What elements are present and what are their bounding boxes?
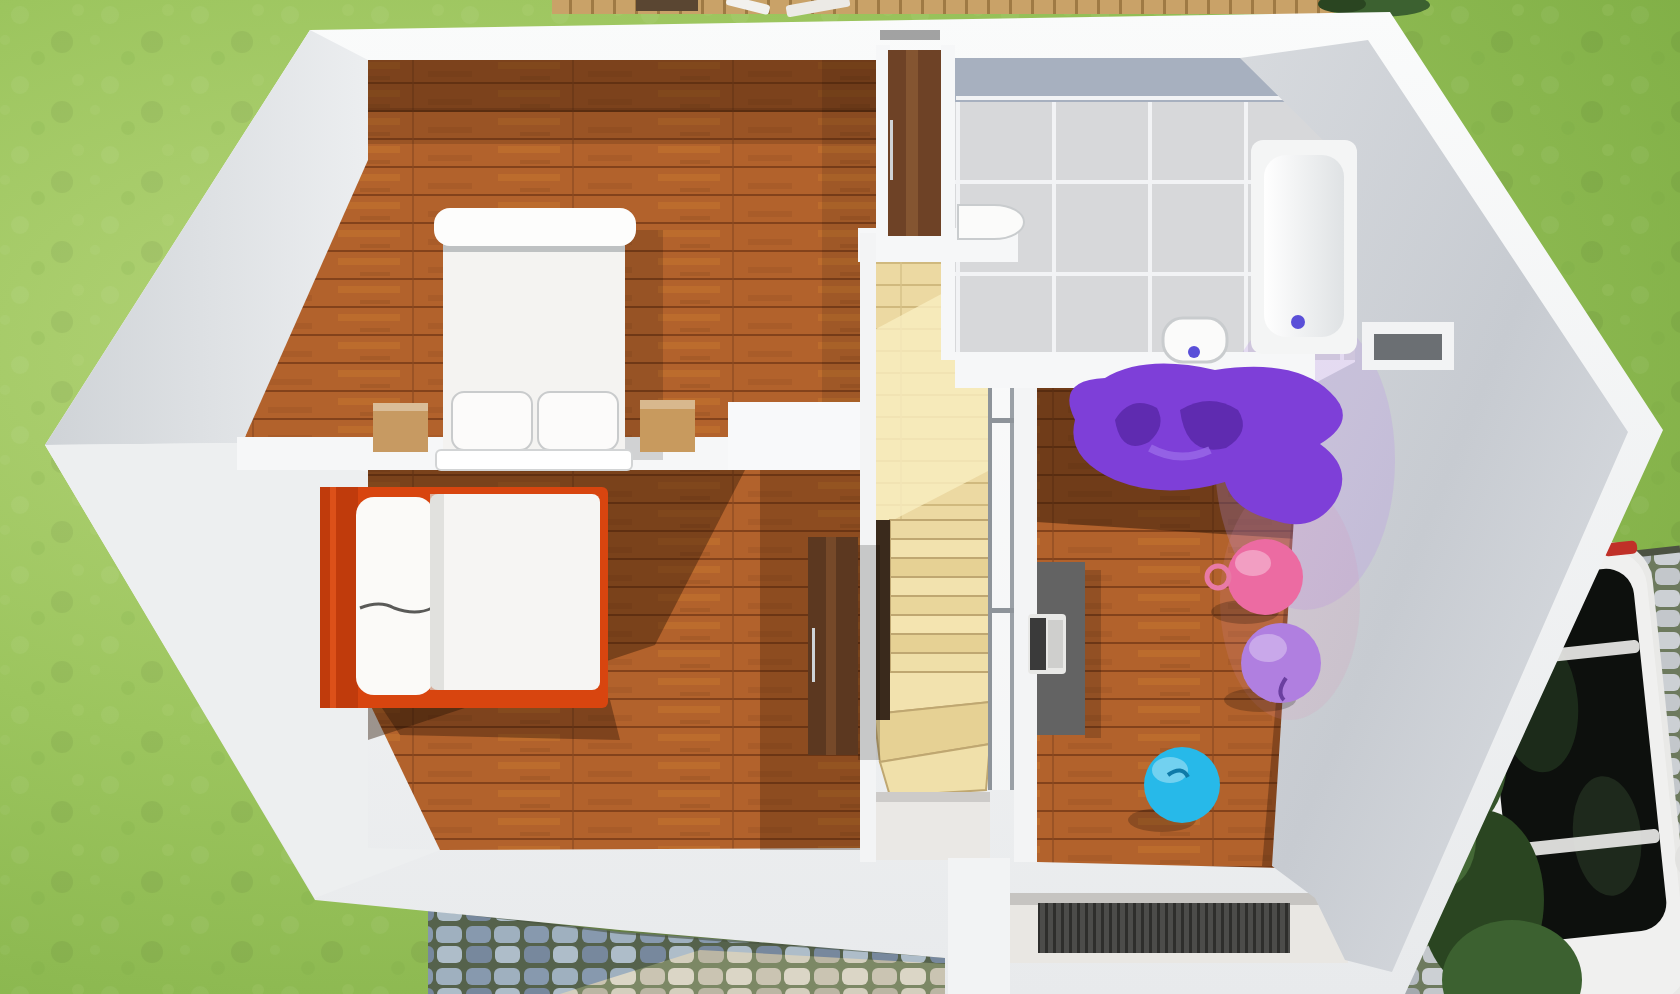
- wall-porch-left: [948, 858, 1010, 994]
- stair-tread: [890, 539, 990, 558]
- lower-landing-shadow: [874, 792, 990, 802]
- niche-slot: [1374, 334, 1442, 360]
- chest-lid: [640, 400, 695, 409]
- wall-niche: [1362, 322, 1454, 370]
- wardrobe-grain: [906, 50, 918, 236]
- ball-pink-highlight: [1235, 550, 1271, 576]
- straight-stairs: [890, 520, 990, 672]
- toilet: [1163, 318, 1227, 362]
- basin-bowl: [958, 205, 1024, 239]
- dresser-grain: [826, 537, 836, 755]
- wash-basin: [958, 205, 1024, 239]
- ball-blue-body: [1144, 747, 1220, 823]
- scene-svg: [0, 0, 1680, 994]
- wardrobe: [888, 50, 941, 236]
- dresser-handle: [812, 628, 815, 682]
- nightstand-left-top: [373, 403, 428, 411]
- bedroom-main-floor-shadow-top: [368, 60, 880, 112]
- tub-basin: [1264, 155, 1344, 337]
- ball-pink: [1227, 539, 1303, 615]
- deck-table: [636, 0, 698, 11]
- stair-tread: [890, 653, 990, 672]
- pillow-left: [452, 392, 532, 450]
- laptop-keyboard: [1030, 618, 1046, 670]
- balcony-door-slit: [880, 30, 940, 40]
- stair-tread: [890, 634, 990, 653]
- stair-tread: [890, 615, 990, 634]
- single-bed: [320, 487, 620, 740]
- entry-porch: [1008, 893, 1348, 963]
- wardrobe-handle: [890, 120, 893, 180]
- laptop-screen: [1048, 620, 1063, 668]
- stair-tread: [890, 577, 990, 596]
- laptop: [1028, 614, 1066, 674]
- tall-dresser: [808, 537, 880, 760]
- pillow-right: [538, 392, 618, 450]
- chest: [640, 400, 695, 452]
- winder-stairs: [874, 672, 990, 796]
- desk: [1028, 562, 1101, 738]
- railing-brace: [988, 418, 1014, 423]
- stair-tread: [890, 520, 990, 539]
- headboard-grain: [330, 487, 336, 708]
- stair-tread: [890, 596, 990, 615]
- bedroom-main-floor-shadow-2: [368, 108, 880, 144]
- tub-drain: [1291, 315, 1305, 329]
- duvet-fold: [430, 494, 444, 690]
- toilet-drain: [1188, 346, 1200, 358]
- headboard-red: [320, 487, 358, 708]
- dresser-shadow: [858, 545, 880, 760]
- duvet-roll: [434, 208, 636, 246]
- headboard: [436, 450, 632, 470]
- wall-closet-left: [876, 45, 890, 237]
- doormat: [1038, 903, 1290, 953]
- wall-bathroom-left: [941, 45, 955, 360]
- desk-shadow: [1085, 570, 1101, 738]
- ball-lilac-highlight: [1249, 634, 1287, 662]
- railing-brace-2: [988, 608, 1014, 613]
- single-duvet: [430, 494, 600, 690]
- bathtub: [1251, 140, 1357, 354]
- single-pillow: [356, 497, 434, 695]
- lower-landing: [874, 792, 990, 860]
- wall-divider-notch: [728, 402, 862, 470]
- floor-plan-render: [0, 0, 1680, 994]
- stair-tread: [890, 558, 990, 577]
- house: [45, 12, 1663, 994]
